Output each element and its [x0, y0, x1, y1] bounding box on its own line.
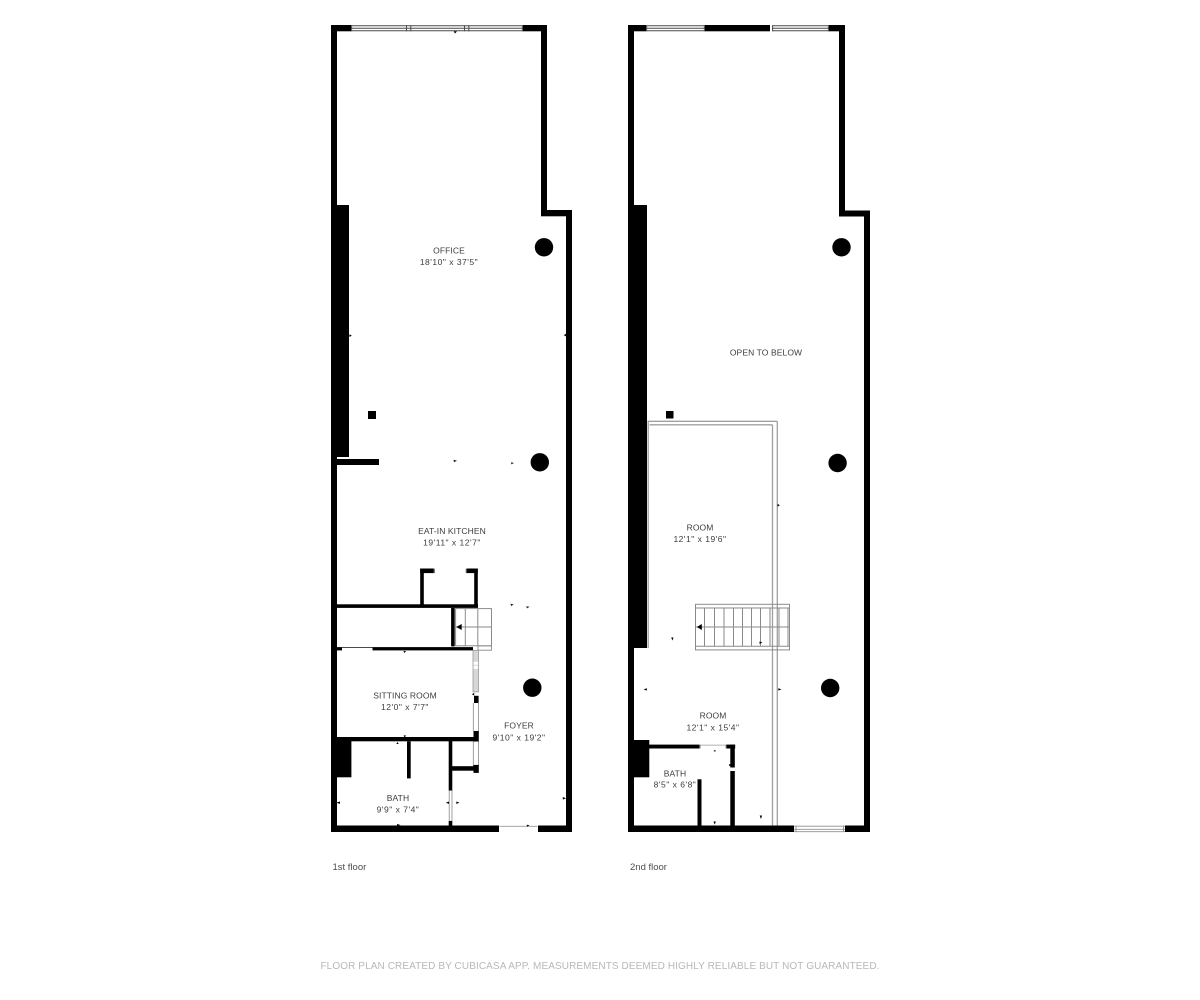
svg-text:BATH: BATH: [387, 793, 409, 803]
svg-text:9'10" x 19'2": 9'10" x 19'2": [492, 733, 545, 743]
svg-text:EAT-IN KITCHEN: EAT-IN KITCHEN: [418, 526, 486, 536]
svg-text:BATH: BATH: [664, 769, 686, 779]
svg-text:FLOOR PLAN CREATED BY CUBICASA: FLOOR PLAN CREATED BY CUBICASA APP. MEAS…: [320, 961, 879, 972]
svg-text:8'5" x 6'8": 8'5" x 6'8": [654, 780, 697, 790]
svg-text:19'11" x 12'7": 19'11" x 12'7": [423, 538, 481, 548]
svg-text:ROOM: ROOM: [687, 523, 714, 533]
svg-text:12'1" x 19'6": 12'1" x 19'6": [673, 534, 726, 544]
svg-text:FOYER: FOYER: [504, 721, 534, 731]
svg-text:9'9" x 7'4": 9'9" x 7'4": [377, 805, 420, 815]
svg-text:1st floor: 1st floor: [333, 862, 367, 873]
svg-text:SITTING ROOM: SITTING ROOM: [373, 691, 437, 701]
svg-text:12'0" x 7'7": 12'0" x 7'7": [381, 702, 429, 712]
svg-text:12'1" x 15'4": 12'1" x 15'4": [686, 723, 739, 733]
svg-text:18'10" x 37'5": 18'10" x 37'5": [420, 257, 478, 267]
svg-text:ROOM: ROOM: [700, 711, 727, 721]
svg-text:OPEN TO BELOW: OPEN TO BELOW: [730, 348, 802, 358]
svg-text:2nd floor: 2nd floor: [630, 862, 667, 873]
svg-text:OFFICE: OFFICE: [433, 246, 465, 256]
